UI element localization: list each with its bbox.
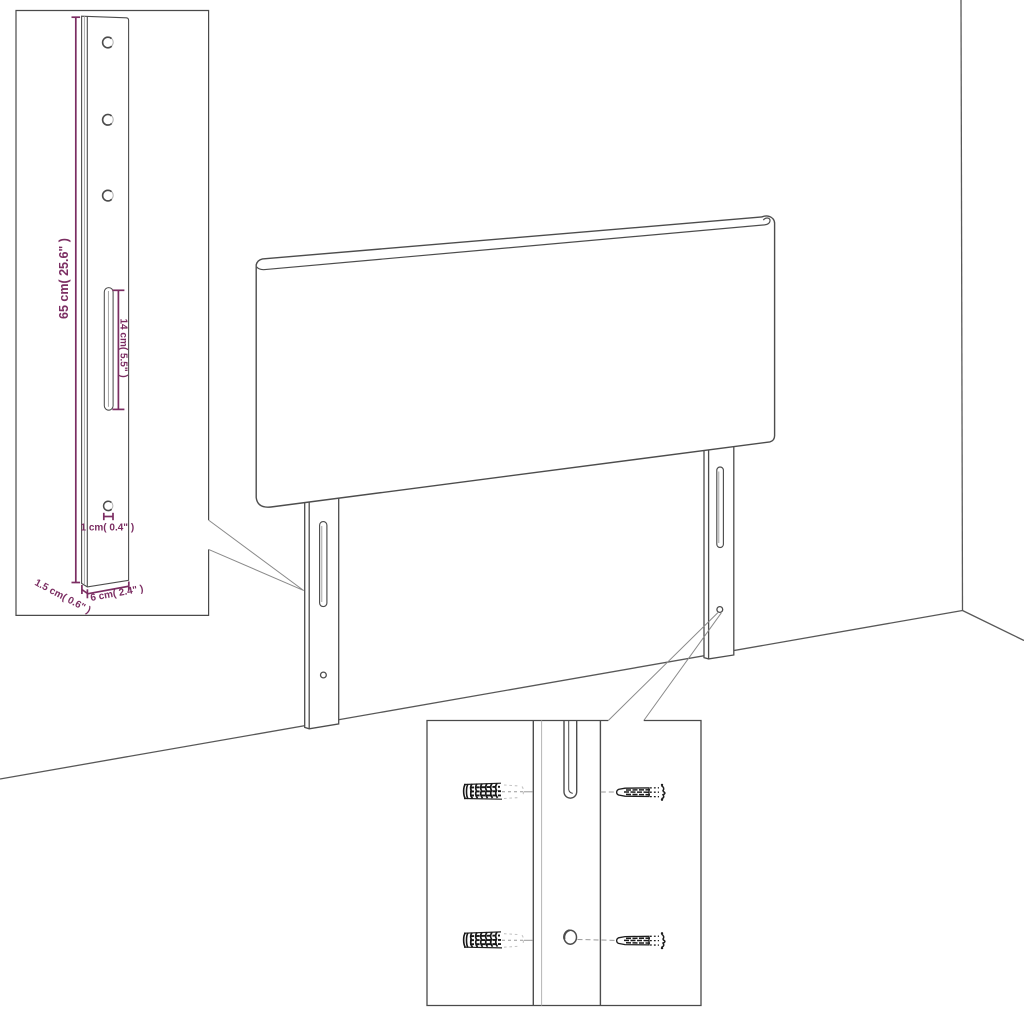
svg-text:14 cm( 5.5" ): 14 cm( 5.5" )	[118, 319, 129, 378]
svg-text:65 cm( 25.6" ): 65 cm( 25.6" )	[57, 238, 71, 319]
svg-text:1 cm( 0.4" ): 1 cm( 0.4" )	[81, 523, 135, 534]
